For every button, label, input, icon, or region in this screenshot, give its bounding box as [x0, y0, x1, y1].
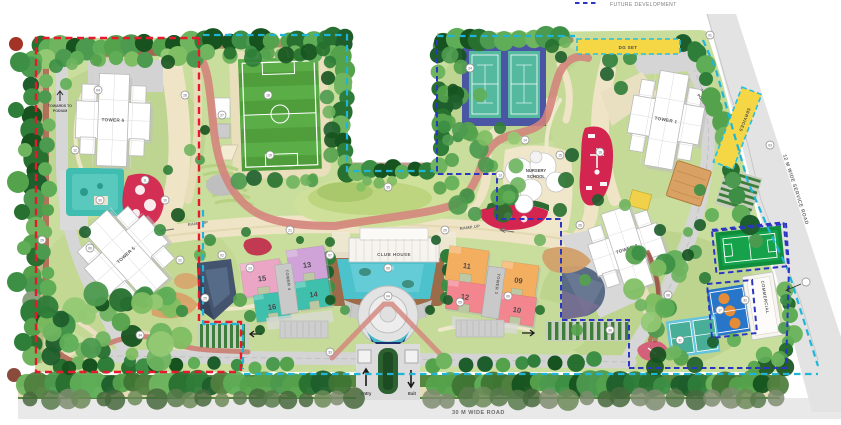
- svg-text:17: 17: [718, 308, 722, 312]
- svg-text:13: 13: [498, 173, 502, 177]
- svg-text:13: 13: [302, 260, 312, 270]
- svg-text:35: 35: [386, 185, 390, 189]
- svg-text:TOWER 6: TOWER 6: [101, 117, 124, 123]
- svg-text:04: 04: [96, 88, 100, 92]
- svg-text:22: 22: [178, 258, 182, 262]
- svg-text:25: 25: [203, 296, 207, 300]
- svg-text:15: 15: [558, 153, 562, 157]
- svg-text:SCHOOL: SCHOOL: [527, 174, 545, 179]
- svg-text:09: 09: [514, 275, 524, 285]
- svg-text:FUTURE DEVELOPMENT: FUTURE DEVELOPMENT: [610, 2, 677, 8]
- svg-text:30 M WIDE ROAD: 30 M WIDE ROAD: [452, 410, 505, 416]
- svg-text:20: 20: [443, 228, 447, 232]
- svg-text:36: 36: [608, 328, 612, 332]
- svg-text:14: 14: [523, 138, 527, 142]
- svg-text:07: 07: [328, 253, 332, 257]
- svg-text:27: 27: [220, 113, 224, 117]
- svg-text:24: 24: [468, 66, 472, 70]
- svg-text:29: 29: [40, 238, 44, 242]
- svg-text:02: 02: [220, 253, 224, 257]
- svg-text:33: 33: [328, 350, 332, 354]
- svg-text:05: 05: [458, 300, 462, 304]
- svg-text:03: 03: [768, 143, 772, 147]
- svg-text:21: 21: [288, 228, 292, 232]
- svg-text:NURSERY: NURSERY: [526, 168, 547, 173]
- svg-text:06: 06: [506, 294, 510, 298]
- svg-text:31: 31: [678, 338, 682, 342]
- svg-text:12: 12: [73, 148, 77, 152]
- svg-text:10: 10: [512, 305, 522, 315]
- svg-text:11: 11: [462, 261, 471, 271]
- svg-text:18: 18: [266, 93, 270, 97]
- svg-text:PODIUM: PODIUM: [53, 109, 67, 113]
- svg-text:23: 23: [248, 266, 252, 270]
- svg-text:28: 28: [183, 93, 187, 97]
- svg-text:16: 16: [267, 302, 277, 312]
- svg-text:08: 08: [666, 293, 670, 297]
- svg-text:11: 11: [143, 178, 147, 182]
- svg-text:DG SET: DG SET: [619, 45, 638, 50]
- svg-text:32: 32: [743, 298, 747, 302]
- svg-text:TOWARDS TO: TOWARDS TO: [48, 104, 72, 108]
- svg-text:CLUB HOUSE: CLUB HOUSE: [377, 252, 411, 257]
- svg-text:30: 30: [98, 198, 102, 202]
- svg-text:05: 05: [386, 266, 390, 270]
- svg-text:19: 19: [268, 153, 272, 157]
- svg-text:01: 01: [708, 33, 712, 37]
- svg-text:26: 26: [578, 223, 582, 227]
- svg-text:10: 10: [163, 198, 167, 202]
- svg-text:15: 15: [257, 273, 267, 283]
- svg-text:04: 04: [386, 294, 390, 298]
- svg-text:34: 34: [138, 333, 142, 337]
- svg-text:09: 09: [88, 246, 92, 250]
- svg-text:Exit: Exit: [408, 391, 416, 396]
- svg-text:16: 16: [598, 150, 602, 154]
